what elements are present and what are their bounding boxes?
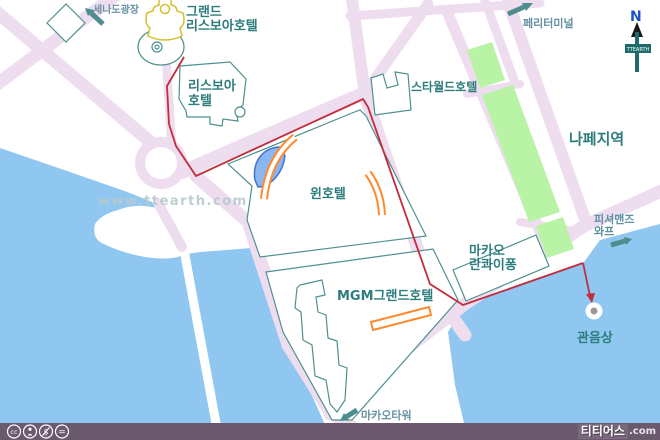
label-starworld-hotel: 스타월드호텔 (411, 78, 477, 95)
macau-tourist-map: N TTEARTH 세나도광장 그랜드 리스보아호텔 리스보아 호텔 스타월드호… (0, 0, 660, 440)
label-fisherman-line2: 와프 (594, 226, 634, 238)
label-macau-tower: 마카오타워 (361, 407, 412, 423)
road-lisboa-link (166, 56, 172, 148)
label-grand-lisboa-line1: 그랜드 (186, 6, 258, 20)
by-glyph-body (28, 434, 33, 436)
compass: N TTEARTH (625, 9, 651, 72)
label-nape-district: 나페지역 (569, 128, 624, 149)
by-glyph-head (28, 428, 31, 431)
label-grand-lisboa: 그랜드 리스보아호텔 (186, 6, 258, 34)
label-fishermans-wharf: 피셔맨즈 와프 (594, 214, 634, 238)
label-lisboa-line2: 호텔 (188, 94, 236, 109)
site-logo-suffix[interactable]: .com (629, 426, 656, 437)
compass-brand-label: TTEARTH (626, 47, 650, 53)
footer-bar: cc $ = 티티어스.com (0, 423, 660, 440)
map-canvas: N TTEARTH (0, 0, 660, 440)
label-wynn-hotel: 윈호텔 (310, 183, 346, 202)
label-lisboa-hotel: 리스보아 호텔 (188, 79, 236, 109)
grand-lisboa-finial (161, 5, 170, 14)
lisboa-round-wing (235, 107, 245, 117)
nd-glyph: = (58, 428, 66, 438)
label-mgm-grand-hotel: MGM그랜드호텔 (337, 285, 433, 304)
label-kunim-statue: 관음상 (577, 327, 613, 346)
label-ferry-terminal: 페리터미널 (523, 15, 574, 31)
starworld-building (371, 72, 411, 115)
label-lkf-line1: 마카오 (469, 245, 517, 259)
cc-glyph: cc (10, 428, 18, 436)
site-logo-brand[interactable]: 티티어스 (578, 424, 628, 439)
roundabout (135, 137, 187, 189)
grand-lisboa-tower (146, 0, 184, 40)
label-lisboa-line1: 리스보아 (188, 79, 236, 94)
compass-north-label: N (630, 9, 642, 25)
site-logo[interactable]: 티티어스.com (578, 423, 656, 440)
watermark: www.ttearth.com (98, 194, 248, 209)
label-grand-lisboa-line2: 리스보아호텔 (186, 20, 258, 34)
label-senado-square: 세나도광장 (93, 1, 139, 16)
label-lan-kwai-fong: 마카오 란콰이퐁 (469, 245, 517, 273)
by-icon[interactable] (24, 425, 37, 438)
license-icons: cc $ = (4, 423, 84, 440)
label-lkf-line2: 란콰이퐁 (469, 259, 517, 273)
kunim-statue-marker (586, 303, 603, 320)
